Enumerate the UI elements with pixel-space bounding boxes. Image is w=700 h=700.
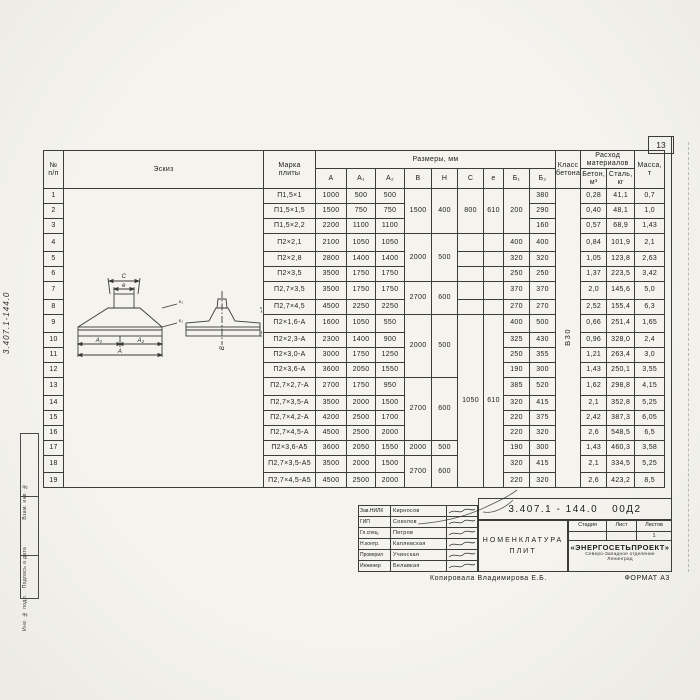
cell-value: 2,0 <box>588 286 599 293</box>
cell-A: 4500 <box>316 425 347 440</box>
cell-marka: П2,7×4,5 <box>264 299 316 314</box>
cell-massa: 2,4 <box>635 332 665 347</box>
cell-b1: 250 <box>504 266 530 281</box>
cell-marka: П1,5×1 <box>264 189 316 204</box>
cell-stal: 334,5 <box>607 455 635 473</box>
cell-b1: 190 <box>504 362 530 377</box>
cell-value: 290 <box>536 207 549 214</box>
cell-B: 2000 <box>405 440 432 455</box>
stamp-podpis-data: Подпись и дата <box>21 497 38 556</box>
cell-value: 400 <box>510 319 523 326</box>
cell-value: 500 <box>536 319 549 326</box>
cell-value: 320 <box>510 255 523 262</box>
cell-massa: 3,55 <box>635 362 665 377</box>
cell-C <box>458 251 484 266</box>
cell-value: 2800 <box>323 255 340 262</box>
cell-B: 2000 <box>405 234 432 282</box>
cell-A2: 550 <box>376 314 405 332</box>
cell-marka: П2,7×3,5 <box>264 281 316 299</box>
cell-value: 423,2 <box>611 477 630 484</box>
signature-role: ГИП <box>359 517 391 527</box>
cell-A1: 2500 <box>347 425 376 440</box>
cell-H: 500 <box>432 314 458 377</box>
cell-stal: 548,5 <box>607 425 635 440</box>
cell-value: 1550 <box>382 444 399 451</box>
cell-b1: 220 <box>504 473 530 488</box>
cell-B: 2700 <box>405 377 432 440</box>
stub-front <box>114 294 134 308</box>
cell-value: П2×3,5 <box>277 270 302 277</box>
cell-value: 263,4 <box>611 351 630 358</box>
cell-value: 2700 <box>410 468 427 475</box>
document-title-line2: плит <box>510 548 537 555</box>
cell-value: 220 <box>510 477 523 484</box>
cell-value: 750 <box>355 207 368 214</box>
cell-value: П2,7×4,2-А <box>270 414 309 421</box>
cell-value: 430 <box>536 336 549 343</box>
cell-e <box>484 234 504 252</box>
title-block: Зав.НИЛККирносовГИПСоколовГл.спец.Петров… <box>358 498 672 572</box>
cell-A2: 1550 <box>376 440 405 455</box>
cell-beton: 0,40 <box>581 204 607 219</box>
cell-value: 1500 <box>382 399 399 406</box>
cell-value: П2×3,0-А <box>273 351 305 358</box>
cell-stal: 145,6 <box>607 281 635 299</box>
cell-H: 600 <box>432 281 458 314</box>
cell-value: 1,37 <box>586 270 601 277</box>
cell-A: 4500 <box>316 473 347 488</box>
cell-value: 3,42 <box>642 270 657 277</box>
cell-value: 380 <box>536 192 549 199</box>
cell-value: 2,6 <box>588 477 599 484</box>
header-massa: Масса, т <box>635 151 665 189</box>
cell-e: 610 <box>484 314 504 488</box>
header-num: № п/п <box>44 151 64 189</box>
cell-value: 200 <box>510 207 523 214</box>
cell-stal: 387,3 <box>607 410 635 425</box>
cell-value: 610 <box>487 207 500 214</box>
cell-num: 12 <box>44 362 64 377</box>
header-marka: Марка плиты <box>264 151 316 189</box>
cell-value: 1 <box>51 192 55 199</box>
cell-stal: 298,8 <box>607 377 635 395</box>
cell-b2: 520 <box>530 377 556 395</box>
cell-value: 220 <box>510 414 523 421</box>
cell-value: П2×2,3-А <box>273 336 305 343</box>
table-body: 1 <box>44 189 665 488</box>
cell-marka: П2×3,6-А5 <box>264 440 316 455</box>
cell-e <box>484 266 504 281</box>
cell-e <box>484 299 504 314</box>
cell-value: 1050 <box>462 397 479 404</box>
cell-value: П2,7×3,5 <box>274 286 305 293</box>
cell-value: 6 <box>51 270 55 277</box>
cell-stal: 251,4 <box>607 314 635 332</box>
cell-value: 2200 <box>323 222 340 229</box>
cell-value: 1,05 <box>586 255 601 262</box>
cell-num: 13 <box>44 377 64 395</box>
cell-beton: 2,52 <box>581 299 607 314</box>
cell-value: 800 <box>464 207 477 214</box>
cell-value: 600 <box>438 405 451 412</box>
cell-value: 2100 <box>323 239 340 246</box>
cell-massa: 1,65 <box>635 314 665 332</box>
cell-A1: 1750 <box>347 347 376 362</box>
header-dim-e: e <box>484 169 504 189</box>
cell-A: 3500 <box>316 281 347 299</box>
cell-stal: 263,4 <box>607 347 635 362</box>
document-code-box: 3.407.1 - 144.0 00Д2 <box>478 498 672 520</box>
cell-beton: 2,1 <box>581 395 607 410</box>
cell-value: 500 <box>438 342 451 349</box>
cell-value: П2×2,8 <box>277 255 302 262</box>
cell-num: 9 <box>44 314 64 332</box>
cell-A: 4200 <box>316 410 347 425</box>
side-profile <box>186 308 260 327</box>
cell-value: 400 <box>536 239 549 246</box>
cell-value: 3500 <box>323 460 340 467</box>
cell-value: 1550 <box>382 366 399 373</box>
cell-stal: 250,1 <box>607 362 635 377</box>
cell-value: 2250 <box>382 303 399 310</box>
cell-value: 9 <box>51 319 55 326</box>
cell-A: 1000 <box>316 189 347 204</box>
cell-A1: 2000 <box>347 395 376 410</box>
margin-stamp-column: Взам. инв. № Подпись и дата Инв. № подл. <box>20 433 39 599</box>
cell-b1: 370 <box>504 281 530 299</box>
cell-A2: 2000 <box>376 473 405 488</box>
cell-marka: П2,7×4,5-А <box>264 425 316 440</box>
cell-value: 11 <box>50 351 58 358</box>
cell-value: 250,1 <box>611 366 630 373</box>
cell-massa: 6,05 <box>635 410 665 425</box>
cell-value: 1250 <box>382 351 399 358</box>
stage-header-row: Стадия Лист Листов <box>569 521 671 532</box>
document-title-box: Номенклатура плит <box>478 520 568 572</box>
cell-value: 1,62 <box>586 382 601 389</box>
cell-value: 400 <box>438 207 451 214</box>
cell-value: 1750 <box>353 270 370 277</box>
cell-beton: 2,1 <box>581 455 607 473</box>
cell-value: 1,21 <box>586 351 601 358</box>
cell-value: 2300 <box>323 336 340 343</box>
cell-value: 500 <box>438 254 451 261</box>
cell-b2: 400 <box>530 234 556 252</box>
cell-value: 160 <box>536 222 549 229</box>
cell-value: 6,5 <box>644 429 655 436</box>
signature-scribble <box>447 528 477 538</box>
cell-num: 7 <box>44 281 64 299</box>
cell-value: 2,42 <box>586 414 601 421</box>
cell-value: 610 <box>487 397 500 404</box>
cell-value: 19 <box>49 477 57 484</box>
header-rashod: Расход материалов <box>581 151 635 169</box>
signature-name: Каплевская <box>391 539 447 549</box>
cell-value: 1050 <box>353 319 370 326</box>
cell-value: 2,63 <box>642 255 657 262</box>
cell-value: 16 <box>49 429 57 436</box>
organization-name: «ЭНЕРГОСЕТЬПРОЕКТ» <box>569 543 671 552</box>
signature-row: Зав.НИЛККирносов <box>359 506 477 517</box>
cell-value: 3 <box>51 222 55 229</box>
header-beton: Бетон, м³ <box>581 169 607 189</box>
cell-num: 19 <box>44 473 64 488</box>
cell-stal: 328,0 <box>607 332 635 347</box>
slab-side <box>186 327 260 336</box>
cell-A2: 1700 <box>376 410 405 425</box>
cell-value: 300 <box>536 366 549 373</box>
cell-beton: 2,6 <box>581 425 607 440</box>
cell-b1: 400 <box>504 234 530 252</box>
cell-value: 1400 <box>353 336 370 343</box>
cell-value: 2,6 <box>588 429 599 436</box>
cell-value: 155,4 <box>611 303 630 310</box>
cell-b2: 430 <box>530 332 556 347</box>
cell-A1: 2050 <box>347 362 376 377</box>
cell-A2: 1550 <box>376 362 405 377</box>
cell-num: 15 <box>44 410 64 425</box>
cell-value: 0,66 <box>586 319 601 326</box>
cell-A1: 2500 <box>347 473 376 488</box>
cell-value: 600 <box>438 468 451 475</box>
cell-value: П1,5×1,5 <box>274 207 305 214</box>
cell-value: 3600 <box>323 366 340 373</box>
cell-b1: 220 <box>504 410 530 425</box>
cell-massa: 6,3 <box>635 299 665 314</box>
cell-marka: П2,7×3,5-А5 <box>264 455 316 473</box>
stage-label: Стадия <box>569 521 607 531</box>
cell-value: 0,28 <box>586 192 601 199</box>
cell-A: 4500 <box>316 299 347 314</box>
cell-stal: 101,9 <box>607 234 635 252</box>
cell-value: 190 <box>510 444 523 451</box>
nomenclature-table: № п/п Эскиз Марка плиты Размеры, мм Клас… <box>43 150 665 488</box>
cell-A: 2200 <box>316 219 347 234</box>
stamp-inv-podl: Инв. № подл. <box>21 556 38 596</box>
cell-value: П2×1,6-А <box>273 319 305 326</box>
dim-label-b: В <box>220 346 226 350</box>
cell-value: 460,3 <box>611 444 630 451</box>
cell-A2: 1500 <box>376 395 405 410</box>
cell-value: 270 <box>510 303 523 310</box>
cell-C <box>458 299 484 314</box>
cell-beton: 0,66 <box>581 314 607 332</box>
signature-row: ПроверилУчинская <box>359 550 477 561</box>
cell-A: 3500 <box>316 266 347 281</box>
cell-b2: 415 <box>530 395 556 410</box>
cell-A1: 2000 <box>347 455 376 473</box>
cell-A2: 1250 <box>376 347 405 362</box>
cell-value: П2,7×3,5-А <box>270 399 309 406</box>
cell-value: 2000 <box>353 399 370 406</box>
cell-value: 3,0 <box>644 351 655 358</box>
dim-label-c: C <box>122 274 127 280</box>
table-row: 1 <box>44 189 665 204</box>
cell-beton: 1,21 <box>581 347 607 362</box>
signature-role: Зав.НИЛК <box>359 506 391 516</box>
cell-value: 2700 <box>323 382 340 389</box>
signature-role: Гл.спец. <box>359 528 391 538</box>
cell-A2: 1500 <box>376 455 405 473</box>
cell-beton: 1,62 <box>581 377 607 395</box>
cell-massa: 1,0 <box>635 204 665 219</box>
organization-city: Ленинград <box>569 557 671 562</box>
cell-A1: 750 <box>347 204 376 219</box>
cell-value: 900 <box>384 336 397 343</box>
cell-num: 17 <box>44 440 64 455</box>
cell-B: 2700 <box>405 455 432 488</box>
cell-A2: 500 <box>376 189 405 204</box>
cell-value: П2×2,1 <box>277 239 302 246</box>
cell-b2: 415 <box>530 455 556 473</box>
cell-value: 750 <box>384 207 397 214</box>
cell-A: 2100 <box>316 234 347 252</box>
sheets-value: 1 <box>637 532 671 540</box>
cell-value: 334,5 <box>611 460 630 467</box>
cell-H: 500 <box>432 234 458 282</box>
cell-marka: П2,7×3,5-А <box>264 395 316 410</box>
header-klass: Класс бетона <box>556 151 581 189</box>
cell-A: 3500 <box>316 395 347 410</box>
cell-A1: 1050 <box>347 234 376 252</box>
cell-value: 1050 <box>382 239 399 246</box>
cell-b2: 320 <box>530 425 556 440</box>
cell-value: 550 <box>384 319 397 326</box>
cell-value: 1,43 <box>586 444 601 451</box>
cell-value: 8,5 <box>644 477 655 484</box>
cell-value: П2,7×4,5-А <box>270 429 309 436</box>
cell-marka: П2×2,3-А <box>264 332 316 347</box>
cell-value: 250 <box>510 351 523 358</box>
signature-name: Кирносов <box>391 506 447 516</box>
cell-value: П2×3,6-А5 <box>271 444 307 451</box>
cell-value: 2,1 <box>644 239 655 246</box>
cell-marka: П2,7×2,7-А <box>264 377 316 395</box>
cell-value: 14 <box>49 399 57 406</box>
cell-stal: 460,3 <box>607 440 635 455</box>
cell-value: 250 <box>536 270 549 277</box>
drawing-sheet: 13 3.407.1-144.0 Взам. инв. № Подпись и … <box>0 0 700 700</box>
cell-massa: 3,58 <box>635 440 665 455</box>
cell-value: 8 <box>51 303 55 310</box>
cell-stal: 48,1 <box>607 204 635 219</box>
dim-label-e: e <box>122 283 126 289</box>
cell-stal: 41,1 <box>607 189 635 204</box>
cell-value: 1050 <box>353 239 370 246</box>
cell-beton: 2,0 <box>581 281 607 299</box>
cell-C <box>458 281 484 299</box>
cell-A2: 950 <box>376 377 405 395</box>
cell-value: 220 <box>510 429 523 436</box>
cell-value: 10 <box>49 336 57 343</box>
stage-values-row: 1 <box>569 532 671 541</box>
cell-value: 500 <box>355 192 368 199</box>
cell-value: 2500 <box>353 477 370 484</box>
cell-B: 1500 <box>405 189 432 234</box>
cell-beton: 1,43 <box>581 440 607 455</box>
cell-H: 500 <box>432 440 458 455</box>
cell-value: 950 <box>384 382 397 389</box>
cell-value: 0,40 <box>586 207 601 214</box>
cell-value: 320 <box>536 429 549 436</box>
cell-value: 4500 <box>323 429 340 436</box>
cell-value: 2500 <box>353 429 370 436</box>
cell-b2: 270 <box>530 299 556 314</box>
cell-b2: 370 <box>530 281 556 299</box>
cell-b2: 375 <box>530 410 556 425</box>
signature-role: Проверил <box>359 550 391 560</box>
cell-value: 1750 <box>382 286 399 293</box>
cell-b1: 190 <box>504 440 530 455</box>
slab-front <box>78 327 162 336</box>
cell-value: 5,0 <box>644 286 655 293</box>
cell-b1: 200 <box>504 189 530 234</box>
cell-massa: 8,5 <box>635 473 665 488</box>
cell-marka: П2×2,8 <box>264 251 316 266</box>
cell-e: 610 <box>484 189 504 234</box>
cell-A2: 1050 <box>376 234 405 252</box>
cell-A1: 1050 <box>347 314 376 332</box>
cell-massa: 5,0 <box>635 281 665 299</box>
cell-A1: 2050 <box>347 440 376 455</box>
signature-scribble <box>447 561 477 572</box>
cell-b1: 320 <box>504 251 530 266</box>
cell-value: 320 <box>510 399 523 406</box>
trapezoid-profile <box>78 308 162 327</box>
cell-A1: 500 <box>347 189 376 204</box>
cell-value: 2050 <box>353 366 370 373</box>
cell-value: 1400 <box>353 255 370 262</box>
header-dim-b: B <box>405 169 432 189</box>
cell-massa: 4,15 <box>635 377 665 395</box>
cell-A2: 1750 <box>376 266 405 281</box>
cell-b2: 160 <box>530 219 556 234</box>
cell-num: 8 <box>44 299 64 314</box>
signature-scribble <box>447 550 477 560</box>
footer: Копировала Владимирова Е.Б. ФОРМАТ А3 <box>430 575 670 582</box>
cell-value: 41,1 <box>613 192 628 199</box>
cell-massa: 6,5 <box>635 425 665 440</box>
cell-num: 5 <box>44 251 64 266</box>
stamp-vzam-inv: Взам. инв. № <box>21 434 38 497</box>
cell-H: 600 <box>432 455 458 488</box>
cell-value: 6,3 <box>644 303 655 310</box>
cell-value: 2000 <box>410 444 427 451</box>
cell-value: 3600 <box>323 444 340 451</box>
cell-value: 4 <box>51 239 55 246</box>
cell-value: 2700 <box>410 294 427 301</box>
cell-value: 68,9 <box>613 222 628 229</box>
cell-A1: 1750 <box>347 266 376 281</box>
cell-value: 2250 <box>353 303 370 310</box>
cell-value: 2000 <box>353 460 370 467</box>
cell-num: 10 <box>44 332 64 347</box>
cell-value: 520 <box>536 382 549 389</box>
cell-value: 5 <box>51 255 55 262</box>
cell-value: 2050 <box>353 444 370 451</box>
cell-value: 1700 <box>382 414 399 421</box>
cell-value: 251,4 <box>611 319 630 326</box>
cell-beton: 0,84 <box>581 234 607 252</box>
cell-value: 548,5 <box>611 429 630 436</box>
cell-value: 15 <box>49 414 57 421</box>
cell-value: 5,25 <box>642 399 657 406</box>
cell-beton: 0,57 <box>581 219 607 234</box>
cell-value: 1500 <box>382 460 399 467</box>
cell-e <box>484 281 504 299</box>
cell-value: 1750 <box>382 270 399 277</box>
cell-value: 5,25 <box>642 460 657 467</box>
